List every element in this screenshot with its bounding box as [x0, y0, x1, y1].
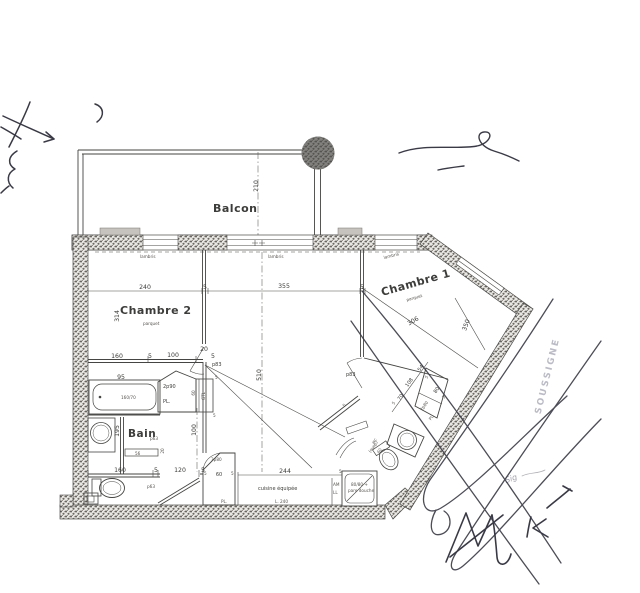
dim-wc-60: 60 — [376, 447, 383, 455]
closet-3p80: 3p80 60 5 5 PL. — [203, 453, 235, 505]
dim-corr-108: 108 — [404, 377, 414, 388]
dim-row-5a: 5 — [148, 353, 152, 360]
pen-signature-top-right — [399, 132, 519, 170]
bath-shelf — [125, 449, 158, 456]
appliance-am: AM — [333, 482, 340, 487]
lambris-label-a: lambris — [140, 254, 156, 259]
dim-gtl-5b: 5 — [213, 413, 216, 418]
dim-entry-80: 80 — [433, 386, 442, 395]
dim-row-top: 240 5 355 5 — [88, 283, 365, 294]
dim-wc-160: 160 — [114, 467, 126, 474]
bath-sink — [88, 418, 115, 452]
balcony-label: Balcon — [213, 202, 258, 215]
appliance-ll: LL — [333, 490, 338, 495]
chambre2-floor: parquet — [143, 321, 160, 326]
dim-row-20: 20 — [200, 346, 208, 353]
closet-2p90: 2p90 PL. GTL 60 5 5 — [158, 371, 218, 418]
dim-kitchen-5: 5 — [339, 469, 342, 474]
kitchen-length: L. 240 — [275, 499, 288, 504]
kitchen-label: cuisine équipée — [258, 485, 297, 492]
closet-2p90-pl: PL. — [163, 399, 171, 405]
tree-icon-texture — [302, 137, 335, 170]
dim-ch2-width: 240 — [139, 284, 151, 291]
dim-line-ch1-a — [362, 288, 478, 368]
dim-wc-5a: 5 — [154, 467, 158, 474]
exterior-wall-top — [72, 228, 432, 250]
closet-2p90-label: 2p90 — [163, 384, 176, 390]
dim-row-5b: 5 — [211, 353, 215, 360]
pen-initials-bottom-right — [446, 486, 572, 564]
closet-2p80-label: 2p80 — [419, 400, 430, 412]
dim-living-width: 355 — [278, 283, 290, 290]
wall-bath-kitchen — [203, 362, 206, 453]
window-sill-right — [338, 228, 362, 235]
bathtub: 160/70 — [89, 380, 160, 414]
floor-plan-drawing: 210 Balcon lambris lambris lambris 240 5 — [0, 0, 640, 593]
window-sill-left — [100, 228, 140, 235]
pen-scribble-top-left — [1, 102, 102, 193]
dim-entry-5a: 5 — [424, 374, 430, 379]
wall-ch2-bath — [88, 356, 203, 363]
door-p63-b: p63 — [147, 484, 155, 489]
dim-closet-5a: 5 — [204, 471, 207, 476]
closet-3p80-pl: PL. — [221, 499, 227, 504]
lambris-label-b: lambris — [268, 254, 284, 259]
dim-row-100: 100 — [167, 352, 179, 359]
dim-gtl-60: 60 — [191, 390, 196, 396]
closet-3p80-label: 3p80 — [211, 457, 222, 462]
lambris-label-c: lambris — [383, 251, 399, 260]
toilet — [92, 479, 125, 498]
dim-wc-120: 120 — [174, 467, 186, 474]
dim-shelf-56: 56 — [135, 451, 141, 456]
door-p83-a: p83 — [212, 362, 222, 368]
dim-balcony-depth: 210 — [253, 180, 260, 192]
kitchen-dim: 244 5 — [238, 468, 342, 478]
entry-vestibule: 5 80 5 2p80 PL — [415, 368, 448, 421]
balcony-railing — [78, 150, 321, 237]
dim-shelf-20: 20 — [160, 448, 165, 454]
chambre2-label: Chambre 2 — [120, 304, 192, 317]
chambre1-labels: Chambre 1 parquet — [380, 267, 455, 309]
gtl-label: GTL — [201, 391, 206, 400]
door-p63-a: p63 — [150, 436, 158, 441]
exterior-wall-left — [73, 237, 88, 508]
dim-sep1: 5 — [203, 284, 207, 291]
dim-closet-5b: 5 — [231, 471, 234, 476]
dim-ch1-306: 306 — [406, 315, 420, 327]
wc-door-leaf — [158, 478, 200, 505]
dim-corr-5a: 5 — [391, 400, 397, 405]
shower-screen: pare douche — [348, 488, 375, 493]
dim-kitchen-244: 244 — [279, 468, 291, 475]
dim-ch1-350: 350 — [461, 318, 472, 332]
door-p83-b: p83 — [346, 372, 356, 378]
hand-basin — [387, 424, 424, 457]
faint-sig-squiggle — [522, 470, 545, 476]
dim-bath-195: 195 — [114, 425, 121, 437]
shower: 80/80 + pare douche — [342, 471, 377, 506]
bathtub-size: 160/70 — [121, 395, 136, 400]
shower-size: 80/80 + — [351, 482, 368, 487]
scanned-floor-plan-page: 210 Balcon lambris lambris lambris 240 5 — [0, 0, 640, 593]
wall-ch2-living — [190, 250, 206, 374]
dim-hall-100: 100 — [191, 424, 198, 436]
dim-living-depth: 510 — [256, 369, 263, 381]
dim-closet-60: 60 — [216, 472, 222, 478]
chambre1-floor: parquet — [406, 293, 423, 302]
dim-row-160: 160 — [111, 353, 123, 360]
